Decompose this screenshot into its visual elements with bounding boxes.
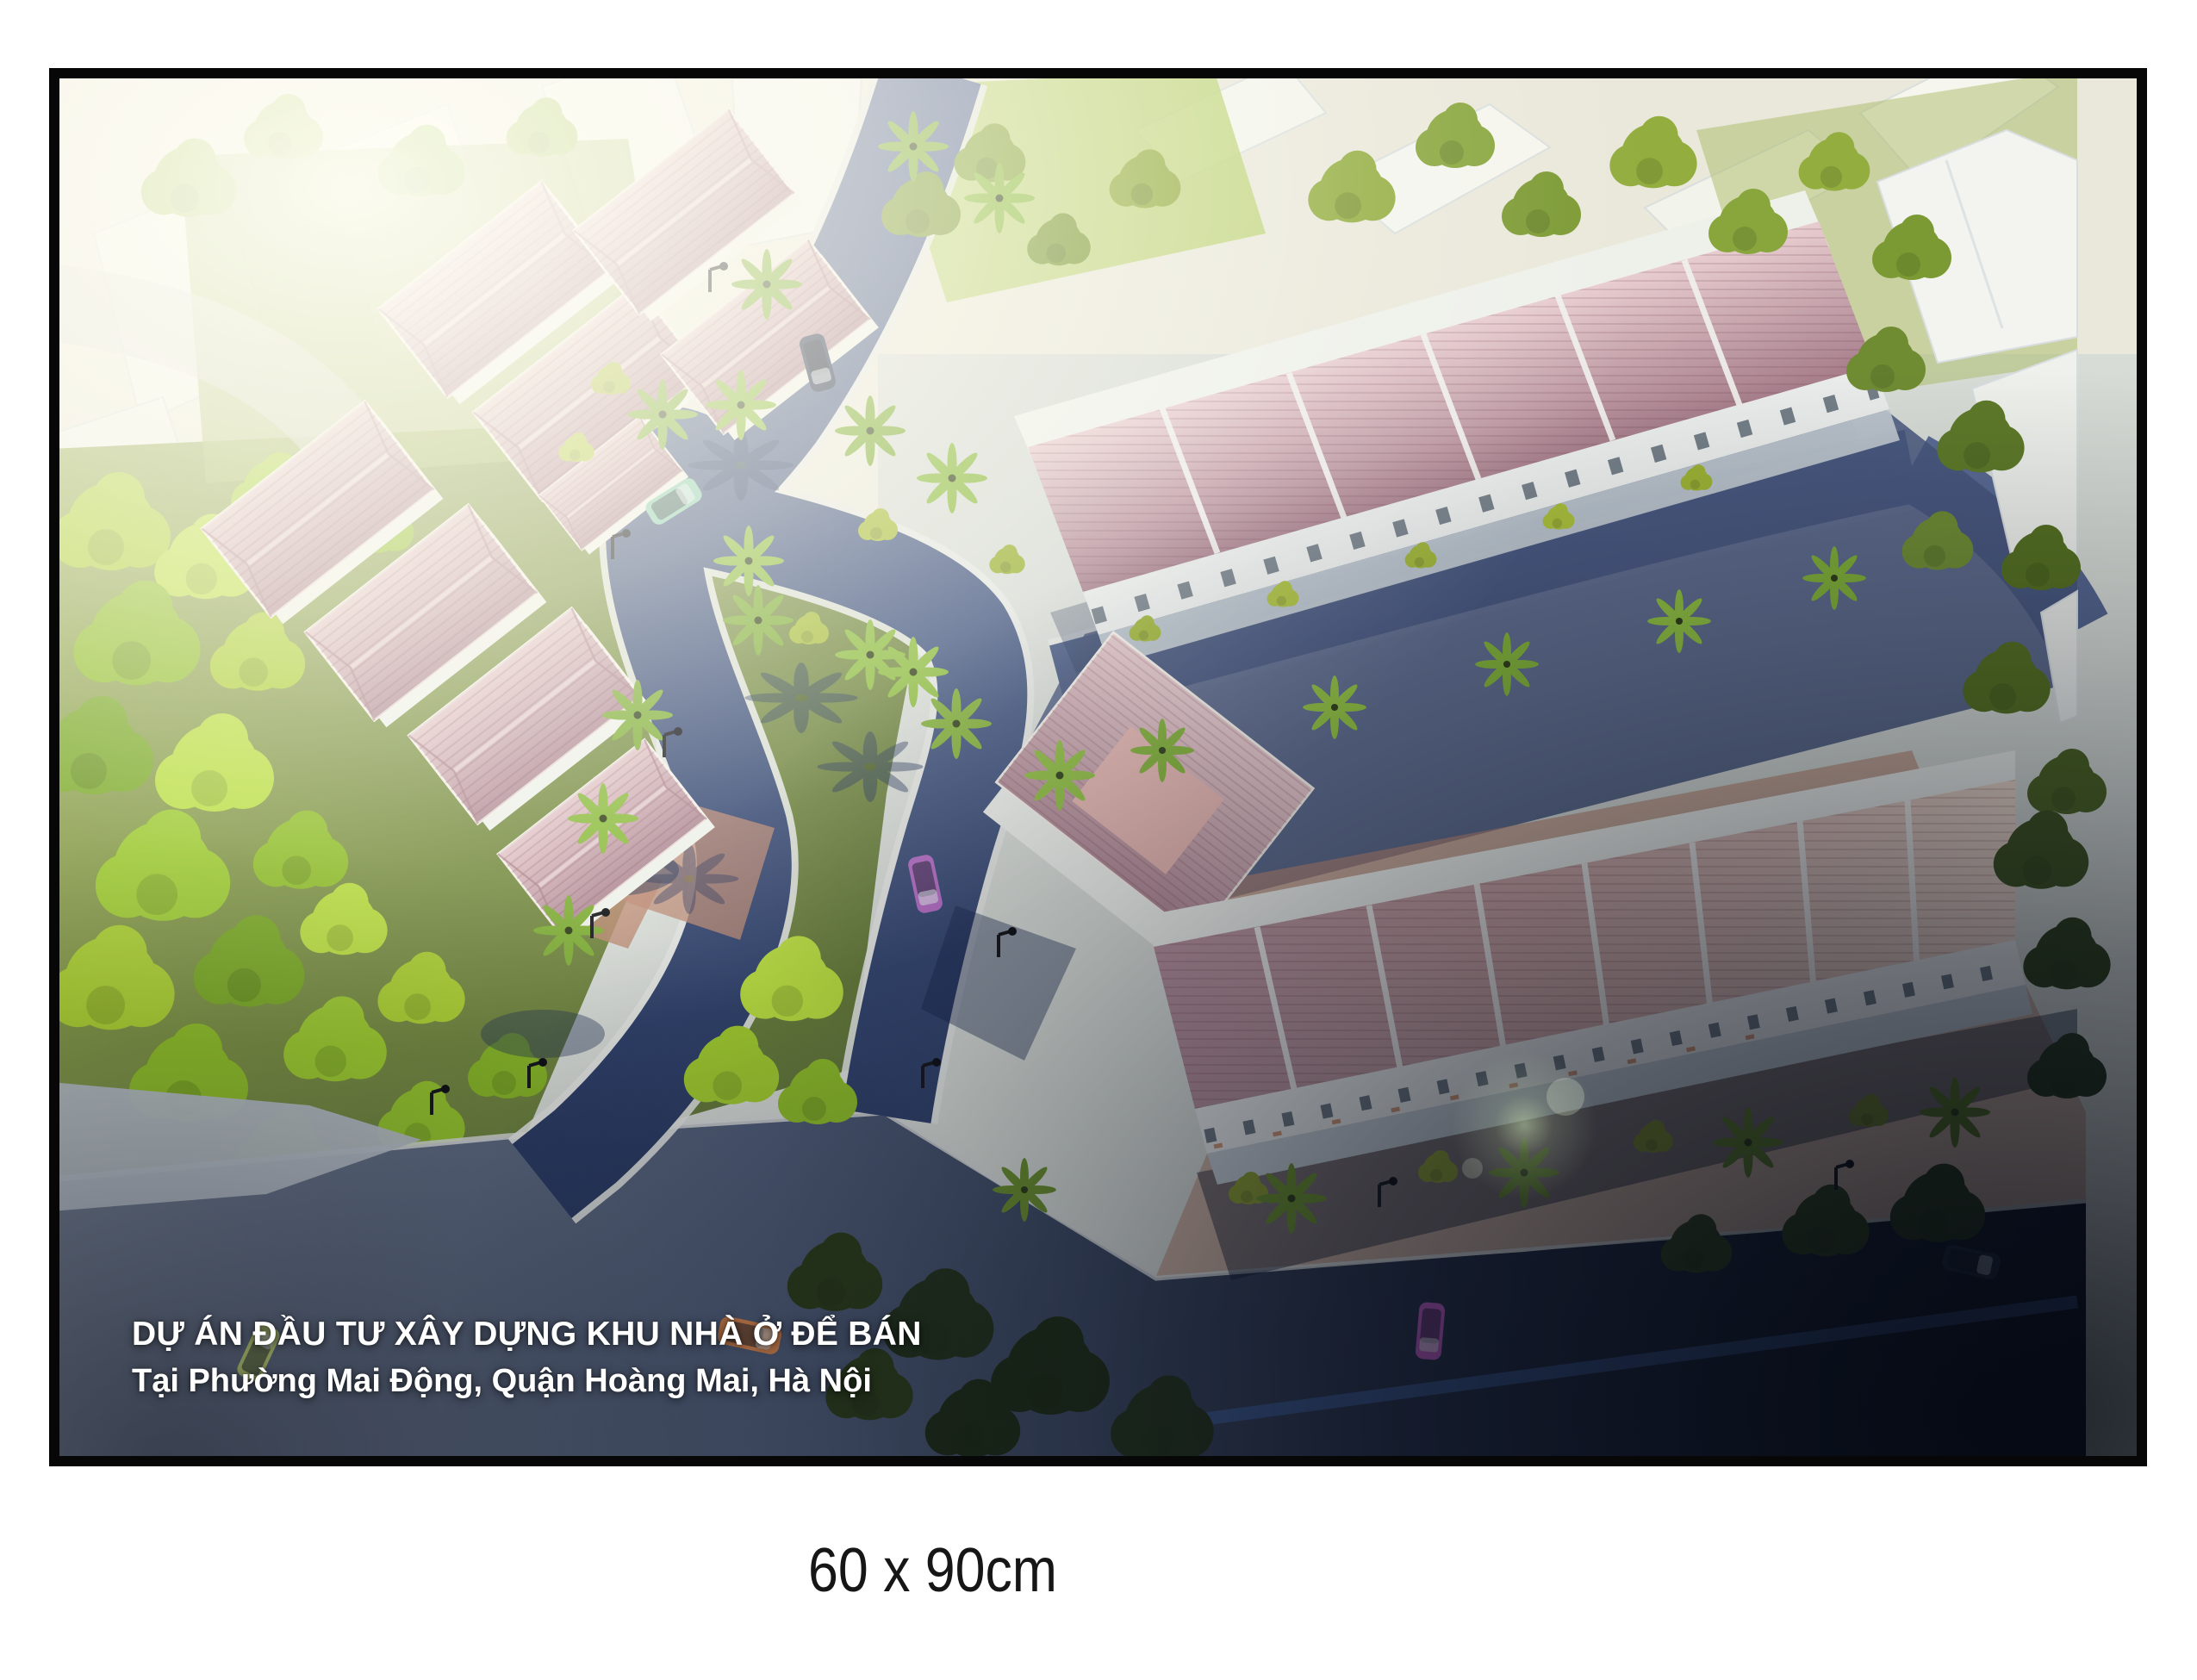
caption-line-2: Tại Phường Mai Động, Quận Hoàng Mai, Hà … xyxy=(132,1358,922,1404)
aerial-rendering xyxy=(59,78,2137,1456)
caption-line-1: DỰ ÁN ĐẦU TƯ XÂY DỰNG KHU NHÀ Ở ĐỂ BÁN xyxy=(132,1310,922,1358)
lens-flare xyxy=(1451,1052,1597,1198)
caption: DỰ ÁN ĐẦU TƯ XÂY DỰNG KHU NHÀ Ở ĐỂ BÁN T… xyxy=(132,1310,922,1404)
size-label: 60 x 90cm xyxy=(808,1535,1057,1606)
poster-frame: DỰ ÁN ĐẦU TƯ XÂY DỰNG KHU NHÀ Ở ĐỂ BÁN T… xyxy=(49,68,2147,1466)
dark-overlay-left xyxy=(59,78,2137,1456)
